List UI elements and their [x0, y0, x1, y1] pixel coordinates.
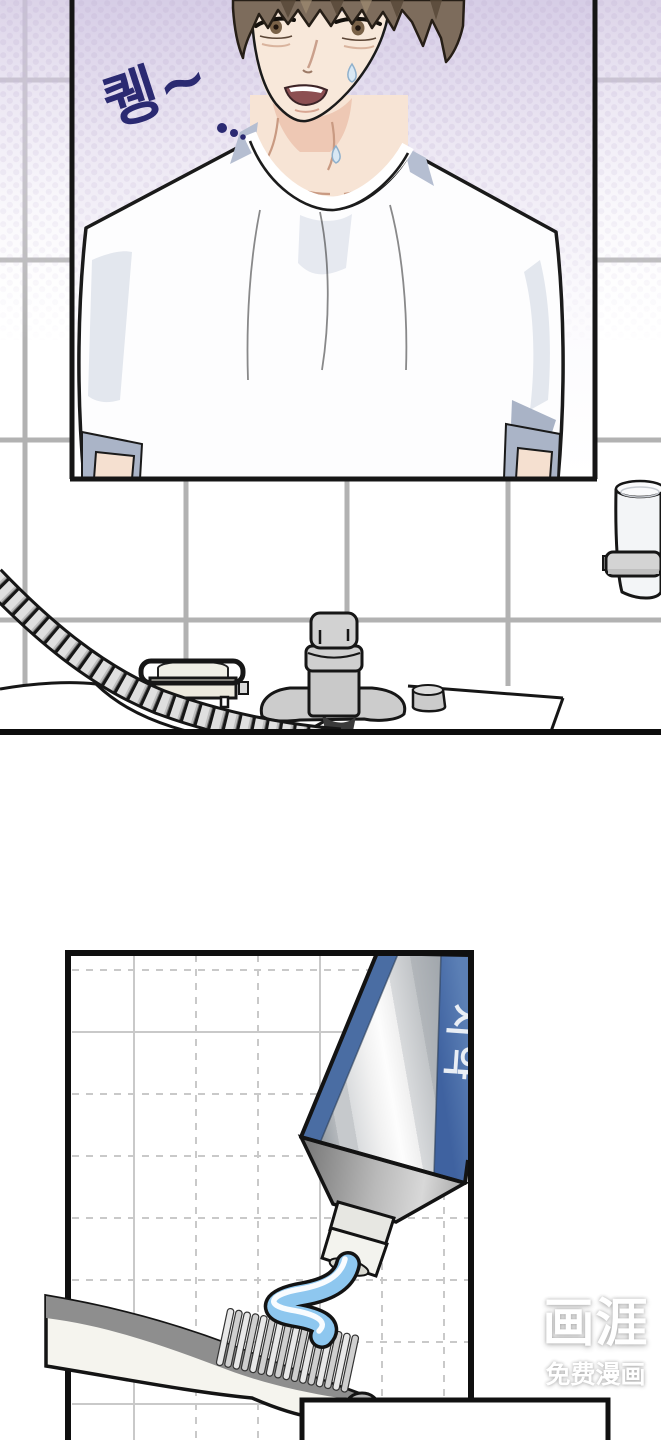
bathroom-panel: 퀭~: [0, 0, 661, 735]
faucet-handle: [311, 613, 357, 648]
webtoon-page[interactable]: 퀭~: [0, 0, 661, 1440]
toothbrush-panel: 치약: [0, 946, 661, 1440]
dish-leg: [221, 697, 228, 707]
faucet-body: [309, 668, 359, 716]
cup-holder-line: [608, 569, 659, 574]
tube-label: 치약: [437, 1001, 487, 1088]
mirror: 퀭~: [70, 0, 597, 479]
panel-bottom-border: [0, 729, 661, 735]
drain-knob: [413, 685, 445, 711]
speech-bubble: [302, 1400, 608, 1440]
